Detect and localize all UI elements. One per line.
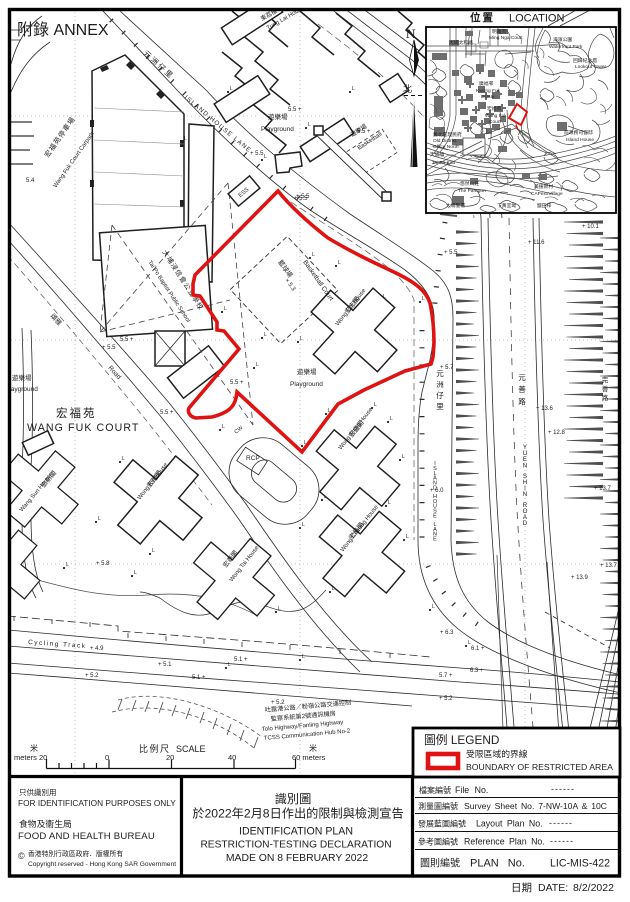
svg-text:廣福邨: 廣福邨	[479, 80, 494, 87]
svg-text:L: L	[264, 332, 267, 338]
svg-text:Estate: Estate	[481, 94, 495, 100]
svg-text:5.5 +: 5.5 +	[288, 107, 302, 113]
svg-text:------: ------	[550, 836, 574, 846]
svg-text:Kwong Fuk: Kwong Fuk	[476, 88, 501, 94]
svg-text:L: L	[256, 362, 259, 368]
svg-text:Wang Fuk: Wang Fuk	[485, 113, 507, 119]
svg-text:+ 12.8: + 12.8	[548, 430, 566, 436]
svg-text:Ming Nga Court: Ming Nga Court	[489, 35, 523, 41]
svg-text:+ 6.0: + 6.0	[430, 488, 444, 494]
svg-text:+ 5.8: + 5.8	[96, 561, 110, 567]
svg-text:File No.: File No.	[455, 785, 488, 795]
svg-text:60 meters: 60 meters	[292, 753, 326, 762]
svg-text:鹽田梓: 鹽田梓	[537, 202, 552, 209]
svg-text:L: L	[302, 654, 305, 660]
svg-text:Waterfront Park: Waterfront Park	[549, 44, 583, 50]
svg-text:香港特別行政區政府．版權所有: 香港特別行政區政府．版權所有	[28, 849, 123, 858]
svg-text:L: L	[264, 154, 267, 160]
svg-text:+ 5.5: + 5.5	[102, 345, 116, 351]
svg-text:只供識別用: 只供識別用	[19, 787, 57, 797]
svg-text:遊樂場: 遊樂場	[268, 112, 288, 121]
svg-text:RESTRICTION-TESTING DECLARATIO: RESTRICTION-TESTING DECLARATION	[200, 840, 391, 851]
svg-text:L: L	[122, 456, 125, 462]
svg-text:遊樂場: 遊樂場	[12, 373, 32, 382]
svg-text:食物及衞生局: 食物及衞生局	[19, 818, 72, 829]
svg-text:L: L	[338, 260, 341, 266]
svg-text:L: L	[152, 548, 155, 554]
svg-text:+ 4.9: + 4.9	[90, 646, 104, 652]
svg-text:測量圖編號: 測量圖編號	[418, 801, 458, 811]
svg-text:CAPexxVillage: CAPexxVillage	[531, 191, 563, 197]
svg-text:Copyright reserved - Hong Kong: Copyright reserved - Hong Kong SAR Gover…	[28, 861, 176, 868]
svg-text:L: L	[402, 454, 405, 460]
svg-text:L: L	[230, 86, 233, 92]
svg-text:遊樂場: 遊樂場	[297, 367, 317, 376]
svg-text:北: 北	[403, 84, 412, 94]
svg-text:Playground: Playground	[290, 381, 323, 388]
svg-text:明雅苑: 明雅苑	[492, 28, 507, 35]
svg-text:大埔警署: 大埔警署	[446, 202, 465, 209]
svg-text:WANG FUK COURT: WANG FUK COURT	[27, 422, 140, 434]
svg-text:6.3 +: 6.3 +	[470, 668, 484, 674]
svg-text:------: ------	[549, 818, 573, 828]
svg-text:L: L	[302, 522, 305, 528]
svg-text:美援新村: 美援新村	[534, 183, 553, 190]
svg-text:L: L	[228, 662, 231, 668]
svg-text:+ 10.1: + 10.1	[582, 224, 600, 230]
svg-text:識別圖: 識別圖	[275, 792, 312, 806]
svg-text:圖例 LEGEND: 圖例 LEGEND	[424, 733, 499, 747]
svg-text:L: L	[352, 86, 355, 92]
svg-text:米: 米	[30, 743, 38, 753]
svg-text:圖則編號: 圖則編號	[420, 857, 460, 870]
svg-text:+ 13.7: + 13.7	[600, 563, 618, 569]
svg-text:受限區域的界線: 受限區域的界線	[466, 748, 528, 759]
svg-text:+ 5.2: + 5.2	[271, 700, 285, 706]
svg-text:Lookout Tower: Lookout Tower	[575, 64, 607, 70]
svg-text:宏福苑: 宏福苑	[56, 406, 97, 420]
svg-text:L: L	[222, 424, 225, 430]
svg-text:Playground: Playground	[261, 126, 294, 133]
svg-text:+ 5.5: + 5.5	[444, 250, 458, 256]
svg-text:L: L	[388, 500, 391, 506]
svg-text:Layout Plan No.: Layout Plan No.	[476, 819, 543, 829]
svg-text:FOOD AND HEALTH BUREAU: FOOD AND HEALTH BUREAU	[18, 831, 155, 842]
svg-text:+ 5.2: + 5.2	[439, 696, 453, 702]
svg-text:BOUNDARY OF RESTRICTED AREA: BOUNDARY OF RESTRICTED AREA	[466, 762, 613, 772]
svg-text:日期: 日期	[511, 882, 532, 894]
svg-text:Survey Sheet No. 7-NW-10A & 10: Survey Sheet No. 7-NW-10A & 10C	[464, 801, 607, 811]
svg-text:meters 20: meters 20	[14, 753, 47, 762]
svg-text:於2022年2月8日作出的限制與檢測宣告: 於2022年2月8日作出的限制與檢測宣告	[192, 806, 403, 821]
svg-text:+ 13.6: + 13.6	[536, 406, 554, 412]
svg-text:5.1 +: 5.1 +	[192, 675, 206, 681]
svg-text:LIC-MIS-422: LIC-MIS-422	[550, 858, 610, 870]
svg-text:6.1 +: 6.1 +	[471, 646, 485, 652]
svg-text:5.5 +: 5.5 +	[160, 410, 174, 416]
svg-text:SCALE: SCALE	[176, 744, 206, 754]
svg-text:+ 11.6: + 11.6	[528, 240, 545, 246]
svg-text:Island House: Island House	[566, 137, 594, 143]
svg-text:5.5 +: 5.5 +	[120, 337, 134, 343]
svg-text:+ 13.9: + 13.9	[571, 575, 589, 581]
svg-text:下黃宜坳: 下黃宜坳	[497, 202, 516, 209]
svg-text:海濱公園: 海濱公園	[553, 36, 572, 43]
svg-text:20: 20	[166, 753, 174, 762]
svg-text:N: N	[406, 26, 416, 41]
svg-text:5.1 +: 5.1 +	[234, 657, 248, 663]
svg-text:MADE ON 8 FEBRUARY 2022: MADE ON 8 FEBRUARY 2022	[226, 853, 368, 864]
svg-text:L: L	[432, 604, 435, 610]
svg-text:+ 5.7: + 5.7	[440, 365, 454, 371]
svg-text:前政務司官邸: 前政務司官邸	[564, 129, 593, 136]
svg-text:L: L	[308, 122, 311, 128]
svg-text:米: 米	[309, 743, 317, 753]
svg-text:Old District: Old District	[433, 138, 457, 144]
svg-text:+ 5.5: + 5.5	[250, 151, 264, 157]
svg-text:L: L	[134, 570, 137, 576]
svg-text:FOR IDENTIFICATION PURPOSES ON: FOR IDENTIFICATION PURPOSES ONLY	[18, 798, 176, 808]
svg-text:5.5 +: 5.5 +	[230, 380, 244, 386]
svg-text:位置: 位置	[470, 11, 495, 24]
svg-text:宏福苑: 宏福苑	[487, 105, 502, 112]
svg-text:RCP: RCP	[246, 455, 260, 462]
svg-text:40: 40	[228, 753, 236, 762]
svg-text:LOCATION: LOCATION	[509, 13, 564, 25]
svg-text:------: ------	[551, 784, 575, 794]
svg-text:L: L	[224, 306, 227, 312]
svg-text:參考圖編號: 參考圖編號	[418, 837, 458, 847]
svg-text:L: L	[278, 606, 281, 612]
svg-text:元善路: 元善路	[518, 373, 526, 406]
svg-text:+ 5.2: + 5.2	[85, 673, 99, 679]
svg-text:5.4: 5.4	[26, 178, 35, 184]
svg-text:檔案編號: 檔案編號	[419, 785, 451, 795]
svg-text:悠然山莊: 悠然山莊	[460, 180, 479, 187]
svg-text:L: L	[300, 336, 303, 342]
svg-text:Court: Court	[489, 119, 501, 125]
svg-text:DATE: 8/2/2022: DATE: 8/2/2022	[538, 882, 614, 894]
svg-text:+ 13.7: + 13.7	[594, 486, 612, 492]
svg-text:L: L	[390, 416, 393, 422]
svg-text:大埔墟: 大埔墟	[430, 151, 445, 158]
svg-text:發展藍圖編號: 發展藍圖編號	[418, 819, 466, 829]
svg-text:舊北區理民府: 舊北區理民府	[433, 131, 462, 138]
svg-text:完善路: 完善路	[602, 375, 609, 402]
svg-text:附錄 ANNEX: 附錄 ANNEX	[17, 20, 109, 39]
svg-text:YUENSHINROAD: YUENSHINROAD	[523, 444, 528, 527]
svg-text:L: L	[406, 534, 409, 540]
svg-text:5.7 +: 5.7 +	[439, 673, 453, 679]
svg-text:L: L	[98, 516, 101, 522]
svg-text:5.5 +: 5.5 +	[357, 129, 371, 135]
svg-text:The Paragon: The Paragon	[458, 188, 486, 194]
svg-text:Reference Plan No.: Reference Plan No.	[464, 837, 545, 847]
svg-text:L: L	[66, 562, 69, 568]
svg-text:大埔太和路: 大埔太和路	[449, 39, 473, 46]
svg-text:回歸紀念塔: 回歸紀念塔	[573, 57, 597, 64]
svg-text:PLAN No.: PLAN No.	[470, 858, 525, 870]
svg-text:+ 5.5: + 5.5	[294, 196, 308, 202]
svg-text:IDENTIFICATION PLAN: IDENTIFICATION PLAN	[239, 826, 353, 838]
svg-text:L: L	[312, 252, 315, 258]
svg-text:©: ©	[18, 851, 25, 861]
svg-text:L: L	[374, 402, 377, 408]
svg-text:L: L	[422, 296, 425, 302]
svg-text:+ 6.3: + 6.3	[440, 630, 454, 636]
svg-text:+ 5.1: + 5.1	[158, 662, 172, 668]
